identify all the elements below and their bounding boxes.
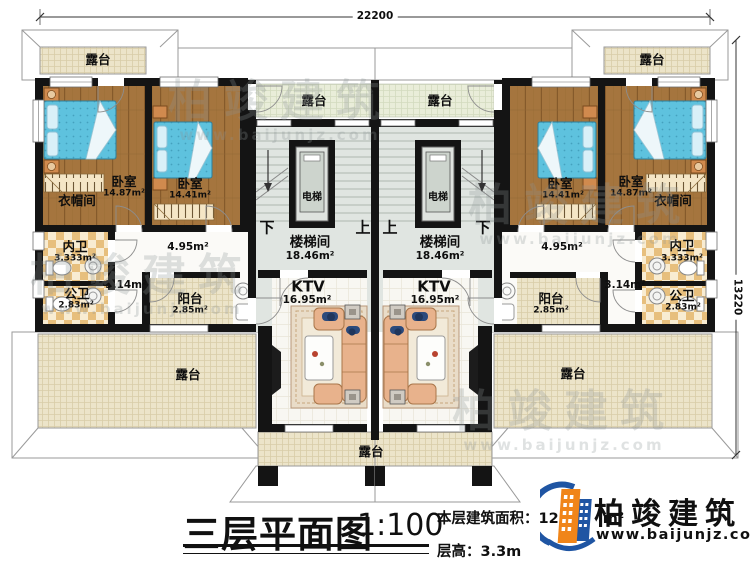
room-label-cloakroom-right: 衣帽间 xyxy=(654,195,692,208)
room-label-ktv-left: KTV xyxy=(291,280,324,295)
stair-direction-up-left: 上 xyxy=(355,221,370,236)
room-label-cloakroom-left: 衣帽间 xyxy=(58,195,96,208)
room-label-bedroom-3: 卧室 xyxy=(547,178,572,191)
room-area-bedroom-1: 14.87m² xyxy=(103,190,145,199)
room-label-terrace-bottom-left: 露台 xyxy=(175,369,200,382)
room-area-balcony-right: 2.85m² xyxy=(533,307,569,316)
room-area-bedroom-3: 14.41m² xyxy=(542,192,584,201)
room-area-ktv-left: 16.95m² xyxy=(283,295,332,306)
room-area-stairwell-left: 18.46m² xyxy=(286,251,335,262)
room-label-balcony-right: 阳台 xyxy=(538,293,563,306)
room-area-ktv-right: 16.95m² xyxy=(411,295,460,306)
dimension-top: 22200 xyxy=(353,11,398,22)
dimension-right: 13220 xyxy=(732,275,743,320)
room-area-public-bath-left: 2.83m² xyxy=(58,302,94,311)
floor-height-line: 层高：3.3m xyxy=(437,540,521,561)
room-area-inner-bath-left: 3.333m² xyxy=(54,255,96,264)
brand-logo-icon xyxy=(540,481,606,555)
drawing-scale: 1:100 xyxy=(357,508,443,543)
floor-height-value: 3.3m xyxy=(481,544,522,560)
room-label-bedroom-4: 卧室 xyxy=(618,176,643,189)
stair-direction-down-right: 下 xyxy=(475,221,490,236)
room-label-terrace-center-right: 露台 xyxy=(427,95,452,108)
room-area-bedroom-4: 14.87m² xyxy=(610,190,652,199)
area-hall-small-right: 3.14m² xyxy=(604,280,645,291)
room-label-terrace-bottom-right: 露台 xyxy=(560,368,585,381)
floor-area-label: 本层建筑面积： xyxy=(437,511,539,527)
room-label-balcony-left: 阳台 xyxy=(177,293,202,306)
room-label-bedroom-2: 卧室 xyxy=(177,178,202,191)
room-area-stairwell-right: 18.46m² xyxy=(416,251,465,262)
stair-direction-down-left: 下 xyxy=(259,221,274,236)
floor-height-label: 层高： xyxy=(437,544,481,560)
room-label-terrace-bottom-center: 露台 xyxy=(358,446,383,459)
brand-website: www.baijunjz.com xyxy=(596,527,750,543)
room-label-inner-bath-right: 内卫 xyxy=(669,240,694,253)
room-label-terrace-center-left: 露台 xyxy=(301,95,326,108)
room-area-public-bath-right: 2.83m² xyxy=(665,304,701,313)
room-label-public-bath-right: 公卫 xyxy=(669,290,694,303)
room-label-stairwell-left: 楼梯间 xyxy=(290,236,331,250)
room-area-inner-bath-right: 3.333m² xyxy=(661,255,703,264)
floorplan-page: 22200 13220 露台 露台 露台 露台 露台 露台 露台 卧室 14.8… xyxy=(0,0,750,562)
title-underline xyxy=(183,544,429,554)
room-label-public-bath-left: 公卫 xyxy=(64,288,89,301)
room-label-stairwell-right: 楼梯间 xyxy=(420,236,461,250)
area-hall-small-left: 3.14m² xyxy=(105,280,146,291)
room-label-ktv-right: KTV xyxy=(417,280,450,295)
room-label-elevator-right: 电梯 xyxy=(428,193,448,203)
room-label-bedroom-1: 卧室 xyxy=(111,176,136,189)
area-hall-left: 4.95m² xyxy=(167,242,208,253)
area-hall-right: 4.95m² xyxy=(541,242,582,253)
room-label-elevator-left: 电梯 xyxy=(302,193,322,203)
room-area-balcony-left: 2.85m² xyxy=(172,307,208,316)
room-label-inner-bath-left: 内卫 xyxy=(62,241,87,254)
room-label-terrace-top-right: 露台 xyxy=(639,54,664,67)
room-area-bedroom-2: 14.41m² xyxy=(169,192,211,201)
stair-direction-up-right: 上 xyxy=(382,221,397,236)
room-label-terrace-top-left: 露台 xyxy=(85,54,110,67)
